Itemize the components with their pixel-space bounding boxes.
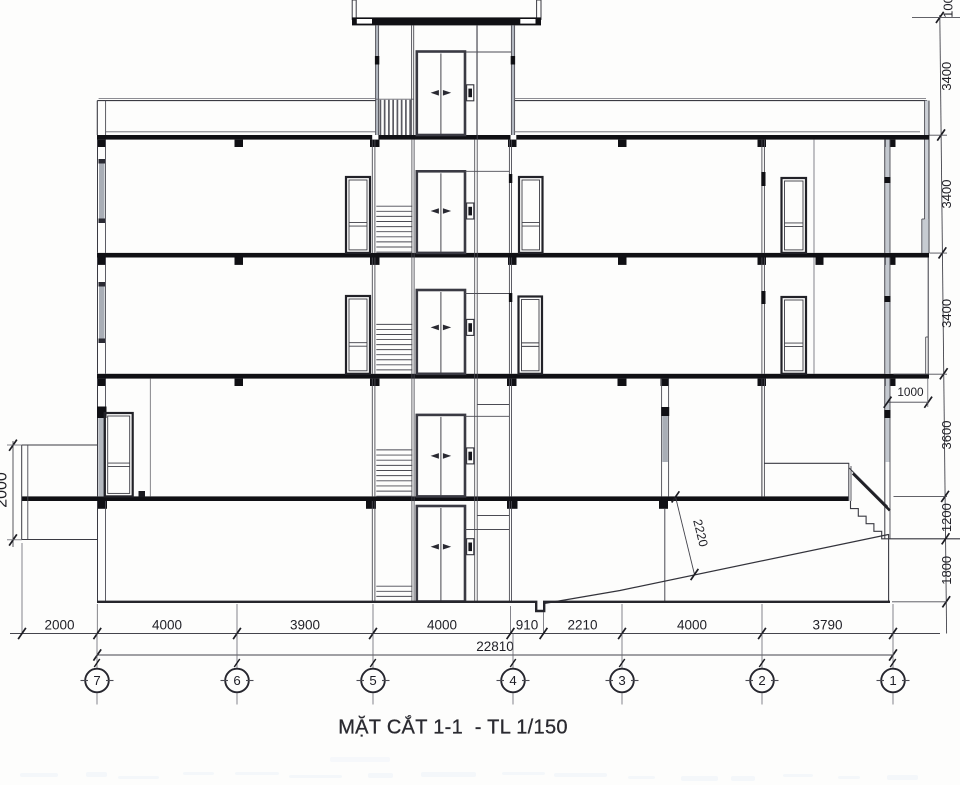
svg-text:3400: 3400	[939, 62, 954, 91]
svg-text:22810: 22810	[476, 639, 514, 654]
svg-text:1200: 1200	[939, 503, 954, 532]
svg-text:5: 5	[369, 673, 376, 688]
svg-text:4000: 4000	[427, 618, 457, 633]
svg-text:7: 7	[93, 673, 100, 688]
svg-text:4000: 4000	[677, 618, 707, 633]
svg-text:MẶT CẮT 1-1 - TL 1/150: MẶT CẮT 1-1 - TL 1/150	[338, 715, 568, 739]
svg-text:3600: 3600	[939, 421, 954, 450]
svg-text:6: 6	[233, 673, 240, 688]
svg-text:3400: 3400	[939, 180, 954, 209]
svg-text:3400: 3400	[939, 299, 954, 328]
svg-text:2210: 2210	[567, 618, 597, 633]
svg-text:1000: 1000	[897, 385, 924, 399]
svg-text:100: 100	[941, 0, 956, 18]
svg-text:2: 2	[758, 673, 765, 688]
svg-text:3790: 3790	[812, 618, 842, 633]
svg-text:1: 1	[889, 673, 896, 688]
svg-text:2000: 2000	[0, 472, 11, 508]
svg-text:4: 4	[509, 673, 516, 688]
svg-text:910: 910	[516, 618, 539, 633]
svg-text:2000: 2000	[44, 618, 74, 633]
svg-text:3900: 3900	[290, 618, 320, 633]
svg-text:4000: 4000	[152, 618, 182, 633]
svg-text:1800: 1800	[939, 556, 954, 585]
svg-text:3: 3	[618, 673, 625, 688]
